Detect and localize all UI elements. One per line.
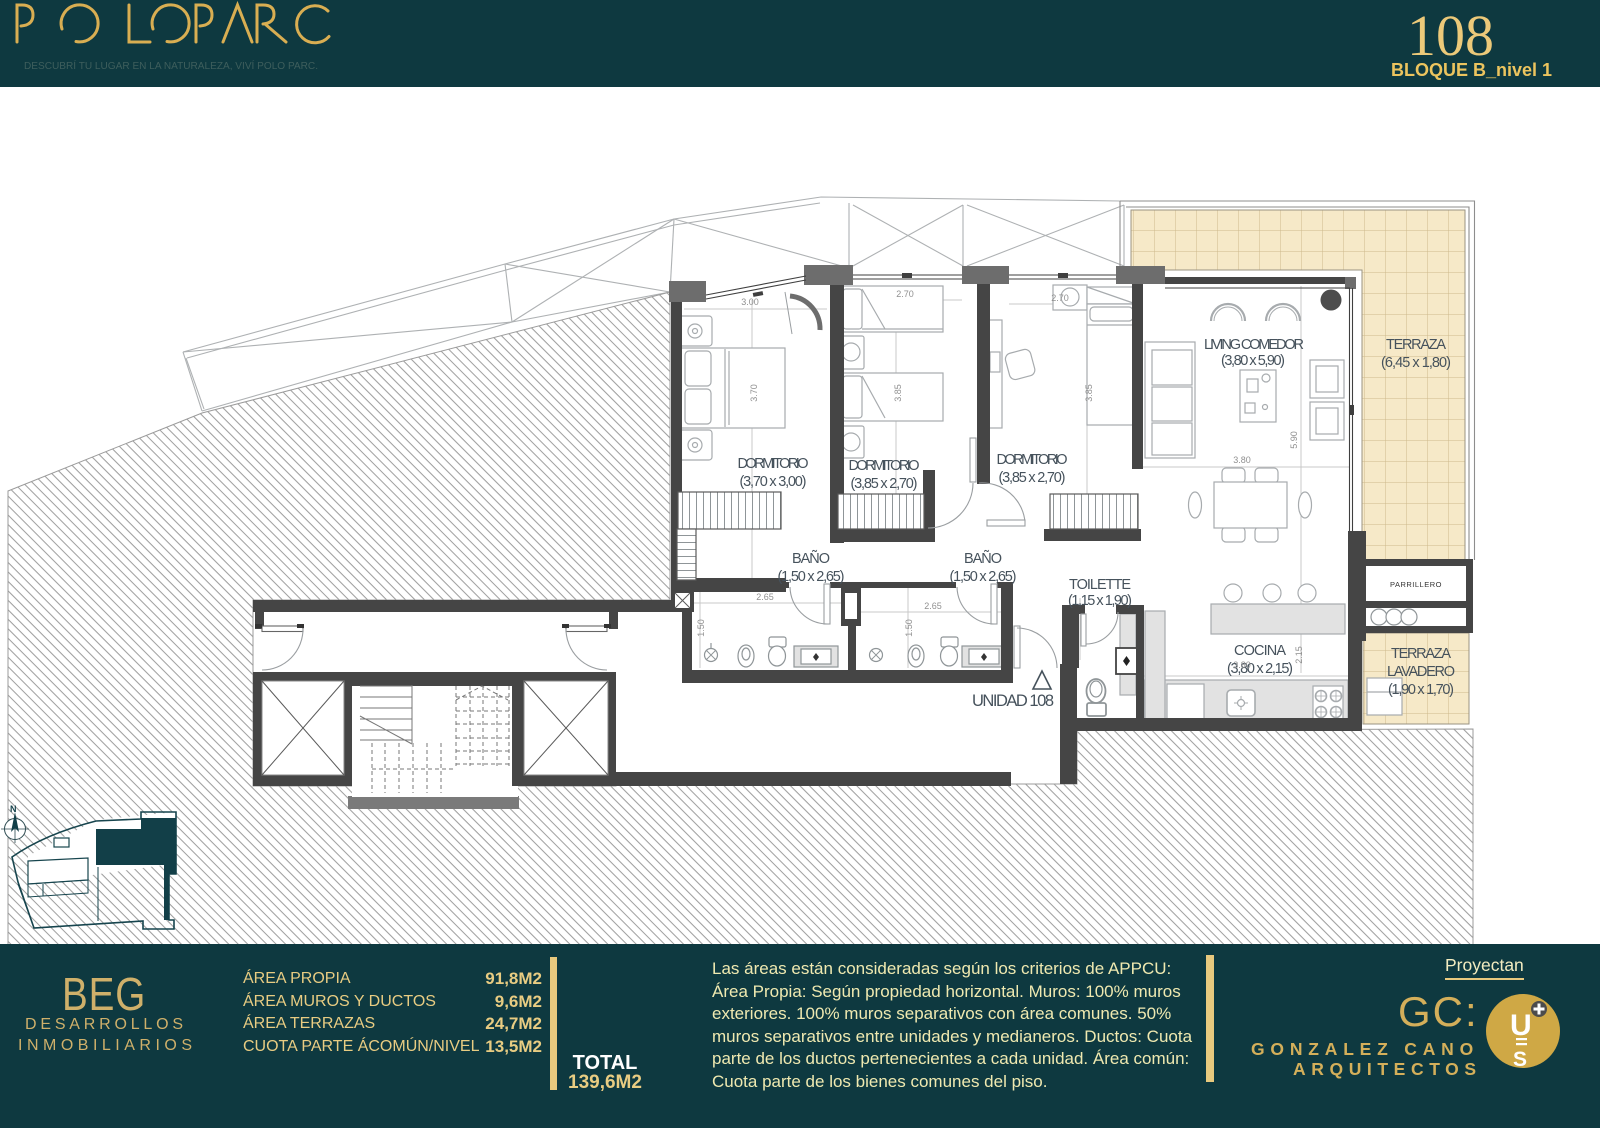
svg-text:COCINA: COCINA — [1234, 643, 1286, 659]
svg-text:(1,50 x 2,65): (1,50 x 2,65) — [950, 569, 1017, 585]
svg-text:LIVING COMEDOR: LIVING COMEDOR — [1204, 337, 1304, 353]
svg-text:BAÑO: BAÑO — [964, 550, 1002, 567]
svg-text:2.65: 2.65 — [924, 601, 942, 611]
svg-text:LAVADERO: LAVADERO — [1387, 664, 1455, 680]
svg-text:UNIDAD 108: UNIDAD 108 — [972, 692, 1054, 710]
svg-text:3.85: 3.85 — [1084, 384, 1094, 402]
svg-text:BAÑO: BAÑO — [792, 550, 830, 567]
svg-text:3.80: 3.80 — [1233, 660, 1251, 670]
svg-text:DESCUBRÍ TU LUGAR EN LA NATURA: DESCUBRÍ TU LUGAR EN LA NATURALEZA, VIVÍ… — [24, 59, 318, 72]
svg-text:S: S — [1513, 1048, 1527, 1071]
svg-text:2.65: 2.65 — [756, 592, 774, 602]
svg-text:(1,15 x 1,90): (1,15 x 1,90) — [1068, 593, 1132, 609]
svg-text:TERRAZA: TERRAZA — [1391, 646, 1451, 662]
svg-text:(6,45 x 1,80): (6,45 x 1,80) — [1381, 355, 1451, 371]
svg-text:2.70: 2.70 — [1051, 293, 1069, 303]
svg-text:DORMITORIO: DORMITORIO — [738, 456, 809, 472]
svg-text:5.90: 5.90 — [1289, 431, 1299, 449]
svg-text:TERRAZA: TERRAZA — [1386, 337, 1446, 353]
svg-text:N: N — [10, 804, 17, 814]
svg-text:PARRILLERO: PARRILLERO — [1390, 580, 1442, 589]
svg-text:(1,90 x 1,70): (1,90 x 1,70) — [1388, 682, 1454, 698]
svg-text:3.85: 3.85 — [893, 384, 903, 402]
svg-text:1.50: 1.50 — [904, 619, 914, 637]
svg-text:(3,70 x 3,00): (3,70 x 3,00) — [740, 474, 807, 490]
svg-text:3.70: 3.70 — [749, 384, 759, 402]
svg-text:(3,85 x 2,70): (3,85 x 2,70) — [999, 470, 1066, 486]
svg-text:DORMITORIO: DORMITORIO — [997, 452, 1068, 468]
svg-text:(3,80 x 5,90): (3,80 x 5,90) — [1221, 353, 1285, 369]
svg-text:2.70: 2.70 — [896, 289, 914, 299]
svg-text:3.80: 3.80 — [1233, 455, 1251, 465]
svg-text:(1,50 x 2,65): (1,50 x 2,65) — [778, 569, 845, 585]
svg-text:(3,85 x 2,70): (3,85 x 2,70) — [851, 476, 918, 492]
svg-text:3.00: 3.00 — [741, 297, 759, 307]
svg-text:U: U — [1510, 1009, 1532, 1042]
svg-text:TOILETTE: TOILETTE — [1069, 577, 1131, 593]
svg-text:DORMITORIO: DORMITORIO — [849, 458, 920, 474]
svg-text:2.15: 2.15 — [1294, 646, 1304, 664]
svg-text:1.50: 1.50 — [696, 619, 706, 637]
